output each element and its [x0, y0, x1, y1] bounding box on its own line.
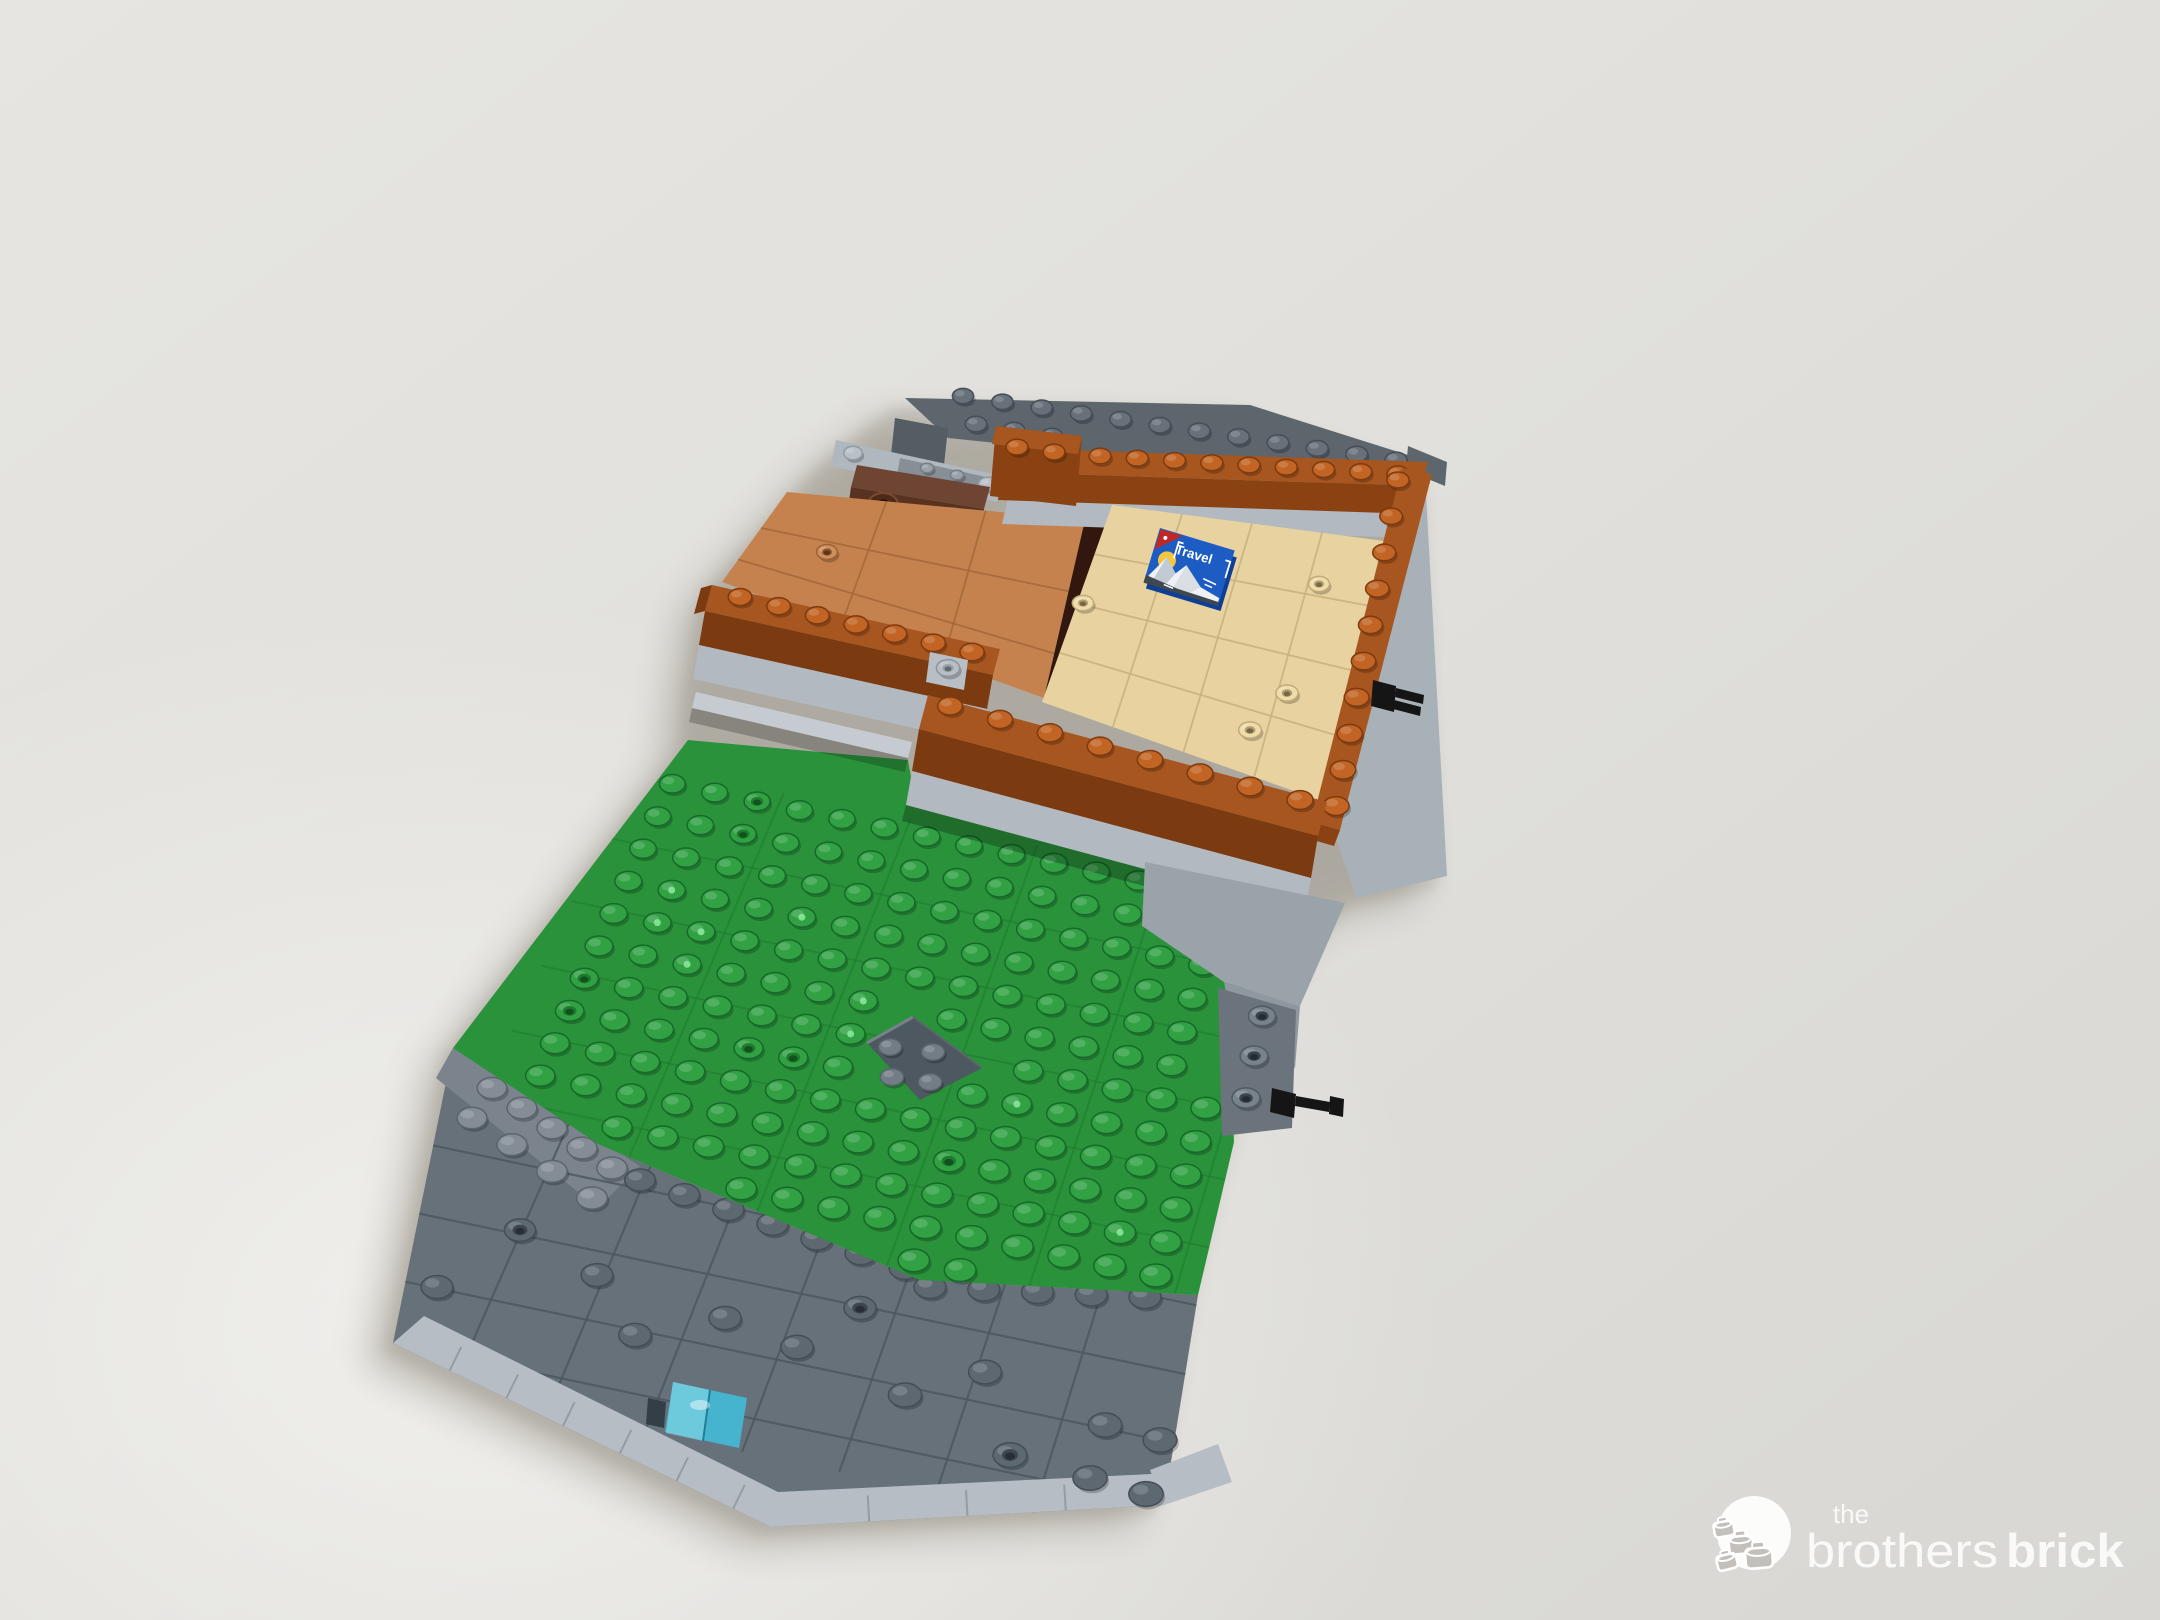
- watermark-brick: brick: [2006, 1524, 2125, 1577]
- watermark-brothers: brothers: [1806, 1524, 1998, 1577]
- lego-wip-photo: Travel the brothers brick: [0, 0, 2160, 1620]
- scene-svg: Travel the brothers brick: [0, 0, 2160, 1620]
- drain-slot: [646, 1398, 666, 1428]
